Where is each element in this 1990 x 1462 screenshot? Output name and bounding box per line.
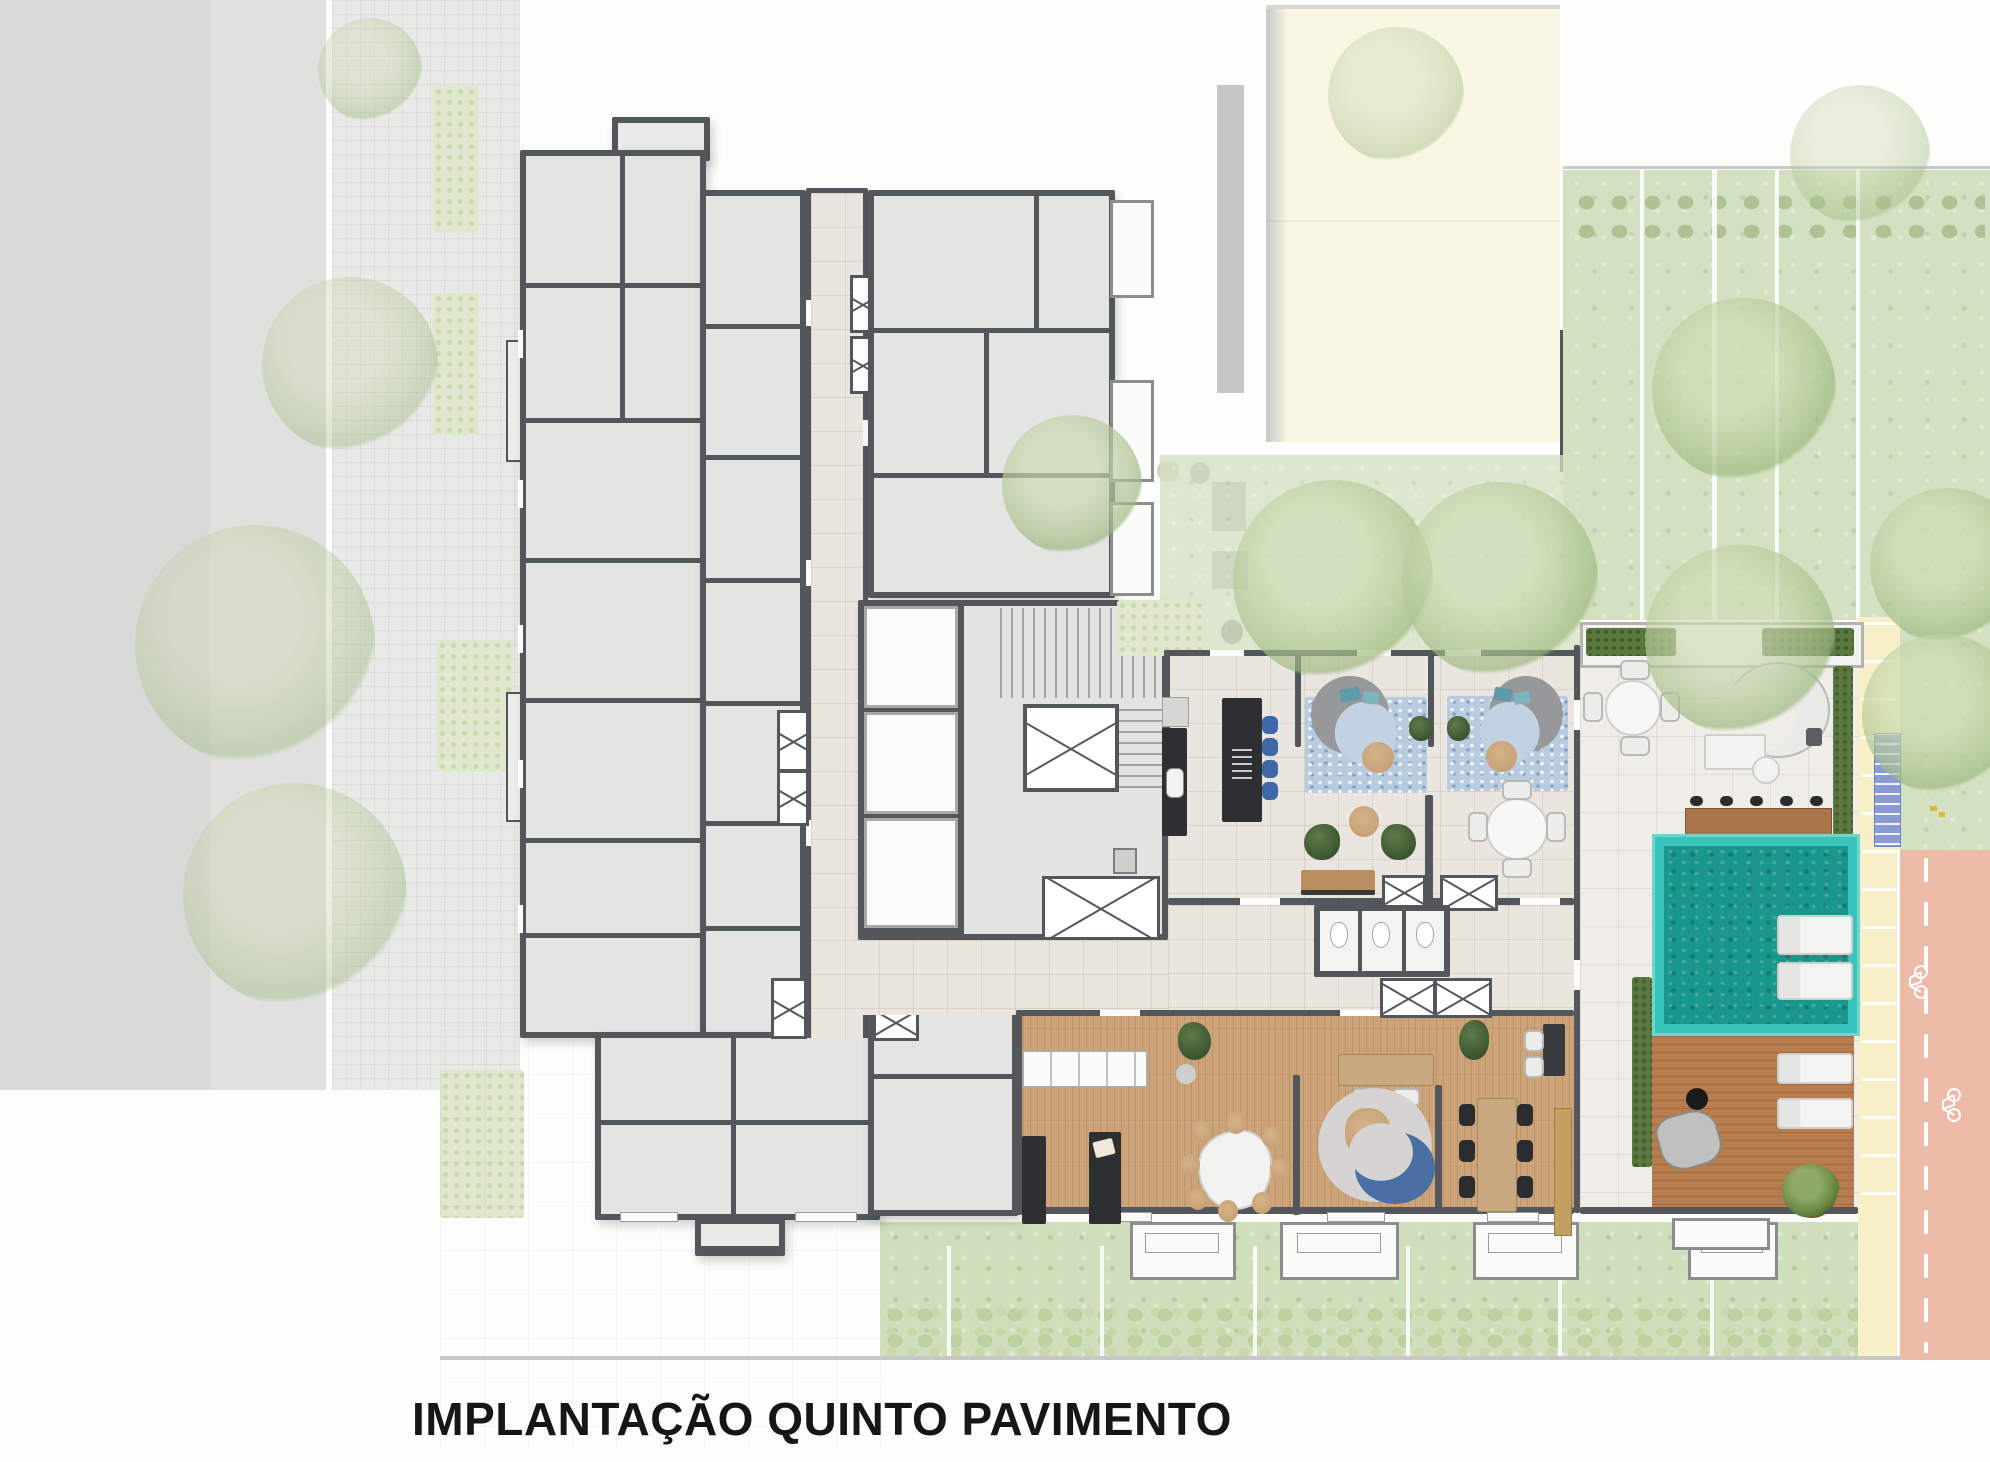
unit-room: [874, 333, 984, 473]
balcony: [1672, 1218, 1770, 1250]
pool-bar-stool: [1780, 796, 1793, 806]
unit-room: [601, 1125, 731, 1214]
lounge-south-wall: [1168, 898, 1574, 905]
unit-room: [1039, 196, 1109, 328]
tree: [1790, 85, 1930, 225]
wood-chair: [1218, 1200, 1238, 1222]
bike-icon: [1936, 1088, 1970, 1122]
tree: [1645, 545, 1835, 735]
bar-stool: [1262, 782, 1278, 800]
elevator-cell: [864, 606, 958, 708]
pouf-gray: [1176, 1064, 1196, 1084]
deck-lounger: [1777, 1053, 1853, 1084]
pool-bar-stool: [1750, 796, 1763, 806]
pool-lounger: [1777, 915, 1853, 955]
outdoor-chair: [1583, 692, 1603, 722]
duct-shaft: [777, 710, 809, 772]
wood-chair: [1188, 1188, 1208, 1210]
window: [518, 760, 523, 788]
deck-plant: [1782, 1164, 1840, 1218]
unit-room: [706, 826, 800, 926]
wood-chair: [1252, 1192, 1272, 1214]
tree: [183, 783, 407, 1007]
deck-lounger: [1777, 1098, 1853, 1129]
glass-door: [1210, 650, 1244, 656]
dining-chair-black: [1517, 1140, 1533, 1162]
toilet: [1416, 922, 1434, 948]
grass-divider: [947, 1246, 951, 1358]
wood-chair: [1226, 1112, 1246, 1134]
unit-room: [526, 156, 620, 283]
partition-wall: [1425, 795, 1433, 900]
unit-room: [526, 938, 700, 1032]
unit-room: [526, 288, 620, 418]
neighbor-roof-edge: [1266, 8, 1288, 442]
unit-door: [806, 560, 811, 586]
dining-table-wood: [1477, 1098, 1517, 1212]
lawn-marking: [1939, 812, 1945, 817]
armchair: [1381, 824, 1416, 860]
dining-chair-black: [1459, 1104, 1475, 1126]
outdoor-chair: [1620, 660, 1650, 680]
bar-stool: [1262, 760, 1278, 778]
door: [1520, 898, 1560, 905]
window: [518, 480, 523, 508]
sofa-cushion: [1513, 691, 1531, 705]
kitchen-sink: [1166, 768, 1184, 798]
bike-icon: [1903, 965, 1937, 999]
roof-garden-planter: [1117, 600, 1203, 656]
kitchen-cabinet-row: [1022, 1050, 1148, 1088]
armchair: [1178, 1022, 1211, 1060]
unit-room: [736, 1125, 874, 1214]
unit-room: [526, 843, 700, 933]
coffee-table: [1486, 741, 1517, 772]
duct-shaft: [777, 770, 809, 826]
outdoor-side-table: [1752, 756, 1780, 784]
neighbor-parapet: [1266, 5, 1560, 9]
unit-room: [601, 1038, 731, 1120]
wood-chair: [1270, 1158, 1290, 1180]
dining-table-round: [1486, 798, 1548, 860]
unit-room: [874, 1079, 1012, 1210]
duct-shaft: [1380, 978, 1436, 1018]
buffet-cabinet: [1554, 1108, 1572, 1236]
bar-stool: [1262, 716, 1278, 734]
pool-bar-stool: [1720, 796, 1733, 806]
sofa-cushion: [1362, 691, 1380, 705]
service-strip: [1217, 85, 1244, 393]
planter-bed: [437, 640, 513, 772]
lower-balcony-slab: [1280, 1222, 1399, 1280]
unit-room: [526, 703, 700, 838]
bench: [1301, 870, 1375, 895]
gourmet-partition: [1293, 1075, 1300, 1215]
grass-divider: [1406, 1246, 1410, 1358]
dining-chair: [1502, 858, 1532, 878]
intercom-box: [1113, 848, 1137, 874]
residential-wing-mid: [700, 190, 806, 1038]
residential-wing-lower: [595, 1032, 880, 1220]
duct-shaft: [1434, 978, 1492, 1018]
dining-chair: [1468, 812, 1488, 842]
lawn-marking: [1930, 806, 1937, 811]
duct-shaft: [1042, 876, 1160, 940]
dining-chair-black: [1459, 1176, 1475, 1198]
lawn-divider: [1856, 170, 1860, 620]
armchair: [1304, 824, 1340, 860]
tree: [1652, 298, 1836, 482]
window-sill: [1327, 1212, 1385, 1222]
unit-room: [526, 423, 700, 558]
stair-treads: [1118, 704, 1162, 788]
window: [518, 330, 523, 358]
duct-shaft: [771, 978, 807, 1039]
glass-door: [1574, 700, 1580, 730]
unit-room: [526, 563, 700, 698]
door: [1340, 1010, 1380, 1016]
armchair: [1459, 1020, 1489, 1060]
desk-chair: [1524, 1056, 1544, 1078]
window: [518, 905, 523, 933]
tree: [262, 277, 438, 453]
bar-counter-setting: [1232, 745, 1252, 779]
plan-title: IMPLANTAÇÃO QUINTO PAVIMENTO: [412, 1392, 1152, 1446]
neighbor-roof-joint: [1266, 220, 1560, 222]
elevator-cell: [864, 712, 958, 814]
hedge: [1632, 977, 1652, 1167]
lane-dash-line: [1924, 858, 1928, 1353]
wood-chair: [1262, 1126, 1282, 1148]
unit-door: [806, 300, 811, 326]
unit-room: [874, 196, 1034, 328]
site-boundary-line: [440, 1356, 1900, 1360]
tree: [1402, 482, 1598, 678]
window: [518, 625, 523, 653]
sofa-cushion-dark: [1806, 728, 1822, 746]
unit-room: [625, 156, 700, 283]
deck-side-table: [1686, 1088, 1708, 1110]
unit-room: [625, 288, 700, 418]
door: [1240, 898, 1280, 905]
unit-room: [706, 196, 800, 324]
balcony-bay: [695, 1218, 785, 1256]
window-sill: [795, 1212, 857, 1222]
window-sill: [1487, 1212, 1539, 1222]
unit-room: [736, 1038, 874, 1120]
glass-door: [1574, 960, 1580, 990]
coffee-table: [1362, 742, 1394, 773]
amenity-corridor-floor: [811, 940, 1168, 1015]
pouf: [1409, 716, 1433, 741]
pool-lounger: [1777, 962, 1853, 1000]
grass-divider: [1100, 1246, 1104, 1358]
tree: [1002, 415, 1142, 555]
lawn-divider: [1640, 170, 1644, 620]
wood-chair: [1180, 1154, 1200, 1176]
desk: [1543, 1024, 1565, 1076]
tree: [1328, 27, 1464, 163]
outdoor-chair: [1620, 736, 1650, 756]
gourmet-partition: [1435, 1085, 1442, 1213]
pool-bar-stool: [1690, 796, 1703, 806]
lower-balcony-slab: [1130, 1222, 1236, 1280]
stair-shaft: [1023, 704, 1119, 792]
kitchen-cabinet: [1162, 697, 1189, 727]
pool-bar-stool: [1810, 796, 1823, 806]
grass-divider: [1253, 1246, 1257, 1358]
window-sill: [620, 1212, 678, 1222]
tree: [135, 525, 375, 765]
pouf: [1447, 716, 1470, 741]
bar-stool: [1262, 738, 1278, 756]
meeting-table: [1338, 1054, 1434, 1086]
bathroom-block: [1314, 905, 1450, 977]
unit-room: [706, 460, 800, 578]
tree: [318, 18, 422, 122]
toilet: [1330, 922, 1348, 948]
dining-chair-black: [1459, 1140, 1475, 1162]
dining-chair: [1502, 780, 1532, 800]
planter-bed: [433, 293, 479, 435]
unit-room: [706, 583, 800, 701]
door: [1100, 1010, 1140, 1016]
floor-plan-rendering: IMPLANTAÇÃO QUINTO PAVIMENTO: [0, 0, 1990, 1462]
dining-chair-black: [1517, 1104, 1533, 1126]
residential-wing-left: [520, 150, 706, 1038]
wood-chair: [1192, 1120, 1212, 1142]
dining-chair: [1546, 812, 1566, 842]
curved-sofa-blue: [1355, 1132, 1435, 1204]
sideboard: [1022, 1136, 1046, 1224]
road-curb: [1897, 850, 1900, 1360]
side-table: [1349, 806, 1379, 837]
elevator-cell: [864, 818, 958, 928]
duct-shaft: [1382, 875, 1426, 909]
dining-chair-black: [1517, 1176, 1533, 1198]
pool-bar-counter: [1685, 808, 1832, 836]
planter-bed: [433, 86, 479, 232]
hedge: [1833, 666, 1853, 836]
toilet: [1372, 922, 1390, 948]
balcony: [1110, 200, 1154, 298]
outdoor-table-round: [1605, 680, 1661, 736]
indoor-outdoor-wall: [1574, 645, 1580, 1213]
unit-room: [706, 329, 800, 455]
desk-chair: [1524, 1030, 1544, 1052]
